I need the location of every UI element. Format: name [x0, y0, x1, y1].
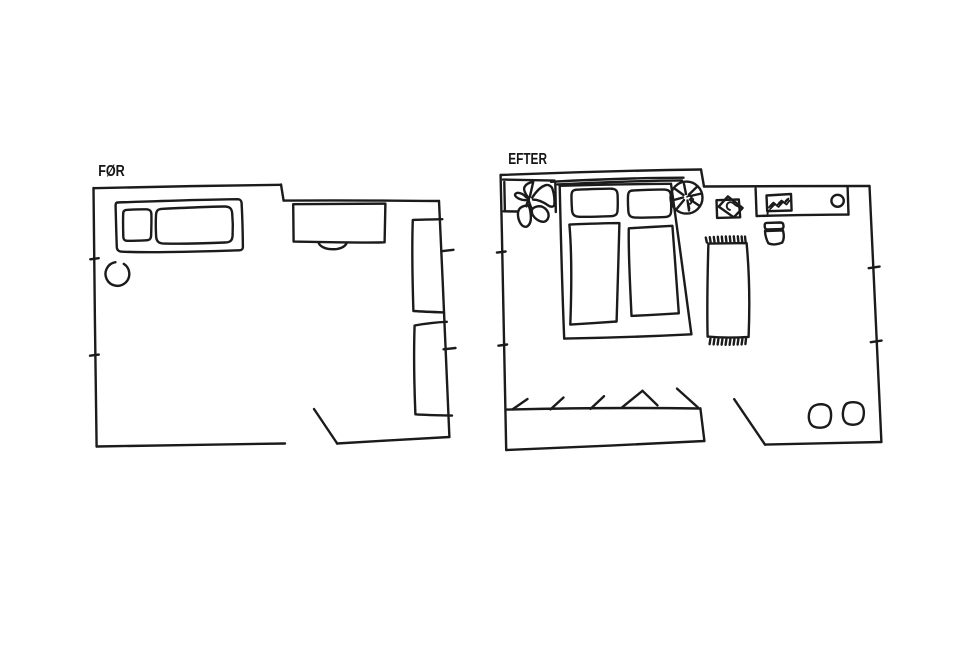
svg-text:FØR: FØR	[98, 163, 125, 180]
svg-text:EFTER: EFTER	[508, 151, 547, 168]
